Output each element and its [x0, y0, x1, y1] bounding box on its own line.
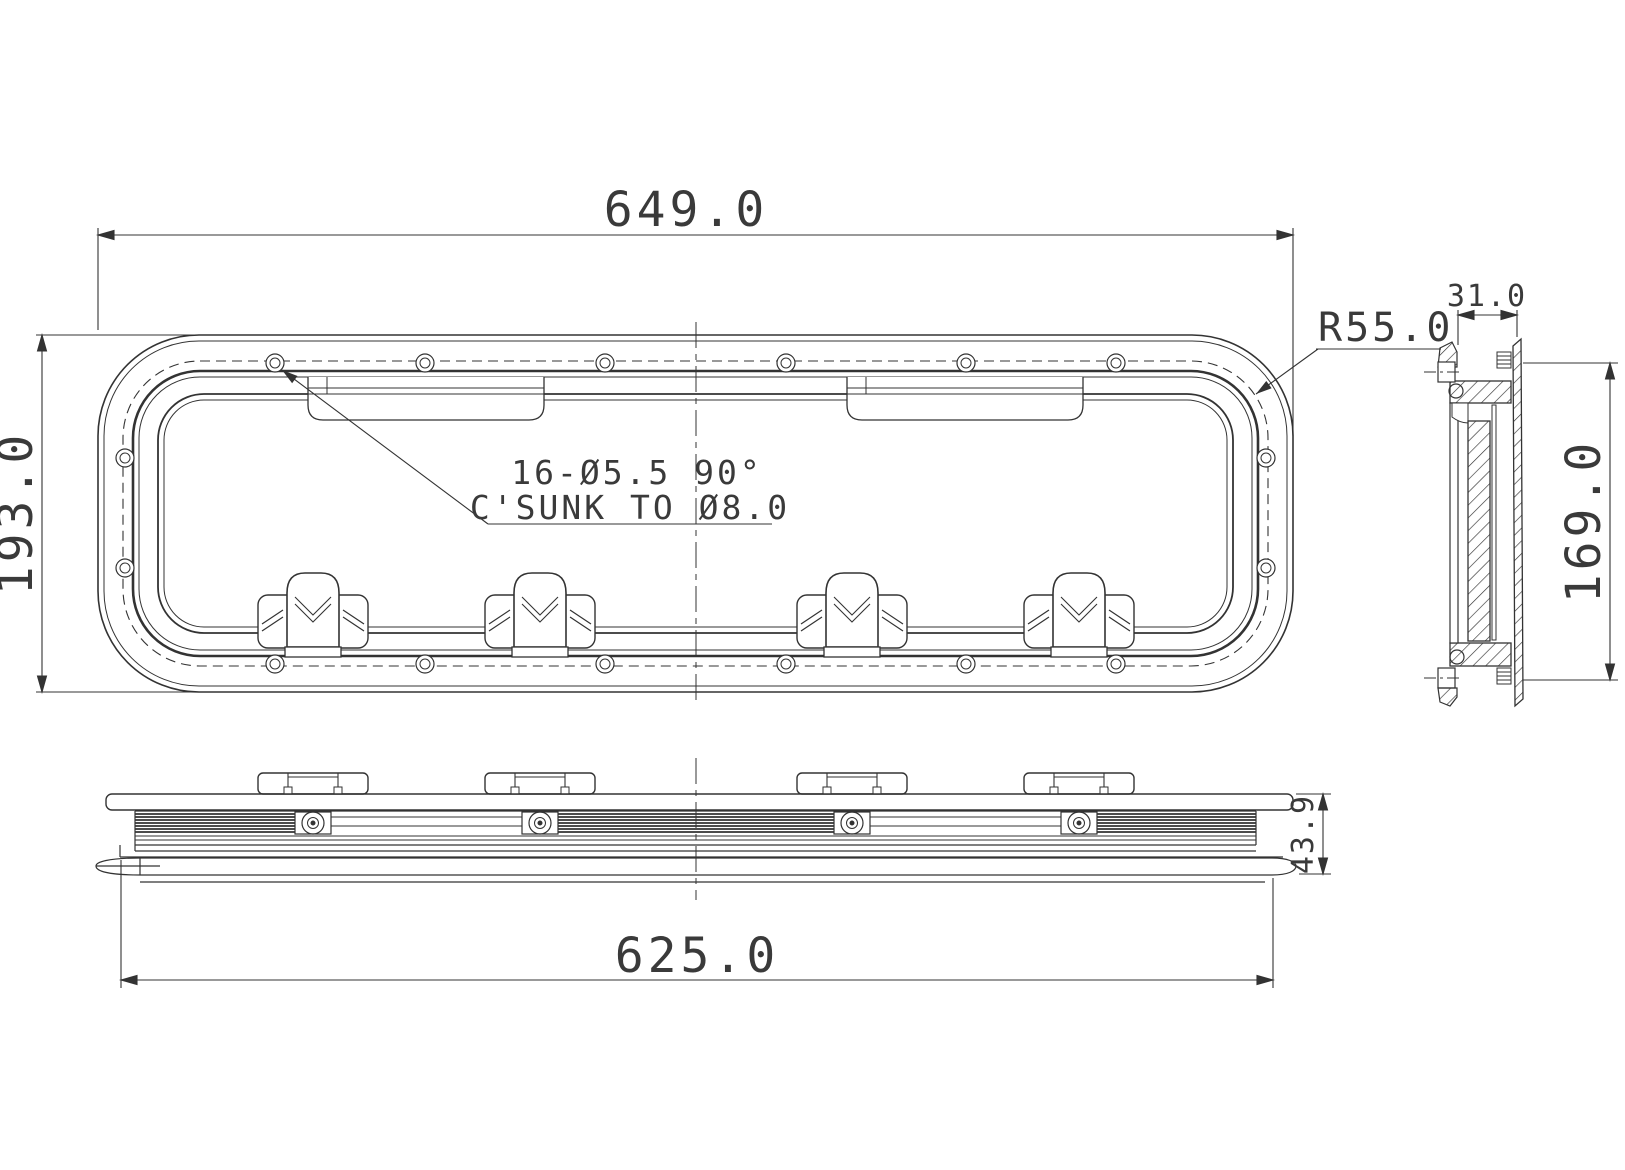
- holes-note-line2: C'SUNK TO Ø8.0: [470, 488, 790, 527]
- plate-1: [295, 812, 331, 834]
- handle-2: [485, 773, 595, 794]
- handle-4: [1024, 773, 1134, 794]
- clamp-bottom-wedge: [1438, 688, 1457, 706]
- dim-bottom-height-label: 43.9: [1286, 794, 1321, 874]
- top-flange-band: [106, 794, 1293, 810]
- holes-note-line1: 16-Ø5.5 90°: [511, 453, 763, 492]
- bottom-view: [96, 758, 1296, 900]
- technical-drawing-canvas: 649.0 193.0 R55.0 16-Ø5.5 90° C'SUNK TO …: [0, 0, 1625, 1170]
- dim-front-height: [36, 335, 200, 692]
- dim-bottom-width-label: 625.0: [615, 928, 780, 984]
- dim-side-thickness: [1458, 310, 1517, 345]
- dim-side-height-label: 169.0: [1556, 439, 1612, 604]
- plate-3: [834, 812, 870, 834]
- leader-corner-radius: [1256, 349, 1441, 394]
- hinge-pocket-right: [847, 377, 1083, 420]
- side-view: [1424, 339, 1523, 706]
- hinge-pocket-left: [308, 377, 544, 420]
- handle-3: [797, 773, 907, 794]
- dim-corner-radius-label: R55.0: [1318, 305, 1453, 351]
- latch-4: [1024, 573, 1134, 657]
- drawing-sheet: 649.0 193.0 R55.0 16-Ø5.5 90° C'SUNK TO …: [0, 0, 1625, 1170]
- threaded-boss-top: [1497, 352, 1511, 368]
- plate-2: [522, 812, 558, 834]
- dim-front-height-label: 193.0: [0, 431, 44, 596]
- latch-1: [258, 573, 368, 657]
- latch-3: [797, 573, 907, 657]
- frame-outer-face: [1450, 403, 1458, 643]
- plate-4: [1061, 812, 1097, 834]
- latch-2: [485, 573, 595, 657]
- glazing-holder: [1468, 421, 1490, 641]
- handle-1: [258, 773, 368, 794]
- frame-bottom-bar: [1450, 643, 1511, 666]
- dim-front-width-label: 649.0: [604, 182, 769, 238]
- dim-side-thickness-label: 31.0: [1447, 279, 1527, 314]
- glass-pane: [1492, 405, 1496, 640]
- threaded-boss-bottom: [1497, 668, 1511, 684]
- flange-plate-section: [1513, 339, 1523, 706]
